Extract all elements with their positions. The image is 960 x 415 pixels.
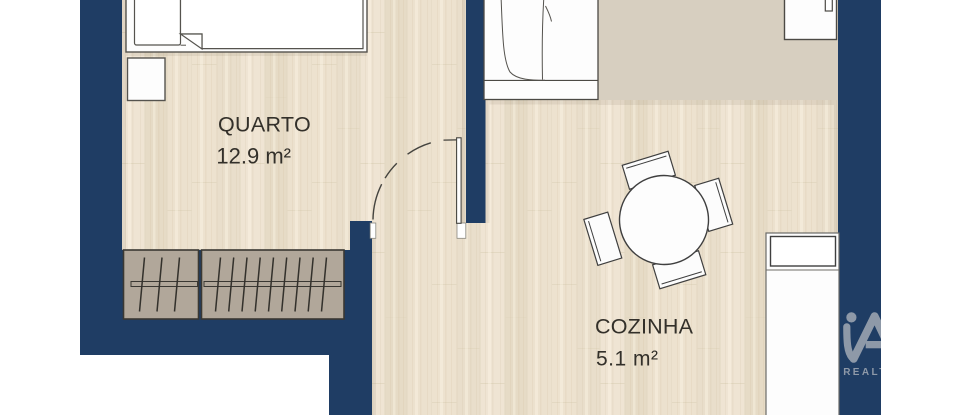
svg-text:COZINHA: COZINHA bbox=[595, 315, 694, 339]
svg-text:QUARTO: QUARTO bbox=[218, 113, 311, 137]
svg-text:12.9 m²: 12.9 m² bbox=[216, 144, 291, 169]
svg-text:5.1 m²: 5.1 m² bbox=[596, 347, 659, 370]
